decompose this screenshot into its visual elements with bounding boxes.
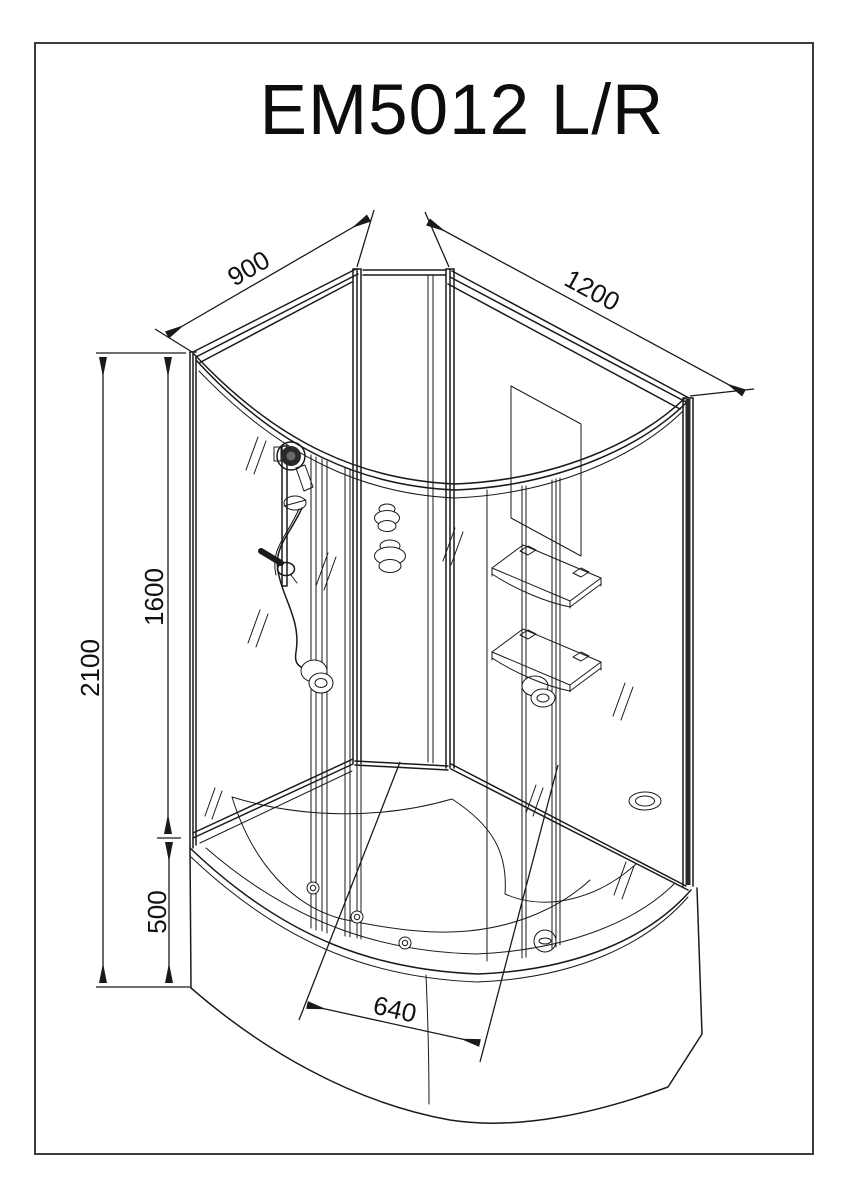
curved-top-track: [194, 354, 686, 498]
tray-rim-inner: [206, 848, 674, 954]
body-jet-left: [301, 660, 333, 693]
dim-back-left-width: 900: [155, 210, 374, 352]
front-left-post: [190, 352, 196, 848]
apron-left-edge: [190, 848, 191, 988]
back-corner-panel: [428, 276, 433, 763]
apron-outline: [191, 888, 702, 1123]
technical-drawing-canvas: EM5012 L/R: [0, 0, 848, 1200]
tub-front-wall: [232, 797, 590, 932]
drain-cap: [534, 930, 556, 952]
corner-shelf-upper: [492, 545, 601, 608]
mixer-faucet: [278, 563, 295, 576]
dim-label-640: 640: [371, 990, 420, 1029]
shower-cabin-drawing: [190, 269, 702, 1123]
back-right-post: [446, 269, 454, 768]
hand-shower-assembly: [261, 442, 313, 675]
shower-handle: [296, 465, 313, 491]
dim-back-right-width: 1200: [425, 212, 754, 396]
tray-rim-outer: [190, 848, 691, 974]
drawing-title: EM5012 L/R: [260, 71, 665, 150]
tray-hydro-jets: [307, 882, 411, 949]
dim-label-500: 500: [142, 890, 172, 933]
dim-label-1600: 1600: [139, 568, 169, 626]
apron-seam: [426, 975, 429, 1104]
shower-tray: [190, 792, 702, 1123]
dim-glass-height: 1600: [139, 357, 169, 834]
body-jet-center-lower: [375, 540, 406, 573]
body-jet-center-upper: [375, 504, 400, 532]
corner-posts: [190, 269, 693, 886]
dim-label-1200: 1200: [560, 263, 625, 317]
drawing-sheet: EM5012 L/R: [0, 0, 848, 1200]
door-panel-edges: [311, 455, 560, 961]
dimension-annotations: 900 1200 2100 1600 500: [75, 210, 754, 1062]
wall-bottom-rails: [193, 759, 688, 890]
dim-label-900: 900: [222, 244, 275, 292]
tub-seat-edge: [452, 799, 636, 902]
drain-recess: [629, 792, 661, 810]
body-jet-right: [522, 676, 555, 707]
dim-label-2100: 2100: [75, 639, 105, 697]
dim-tray-height: 500: [142, 838, 181, 983]
dim-tray-inner-width: 640: [299, 762, 558, 1062]
dim-total-height: 2100: [75, 357, 105, 983]
